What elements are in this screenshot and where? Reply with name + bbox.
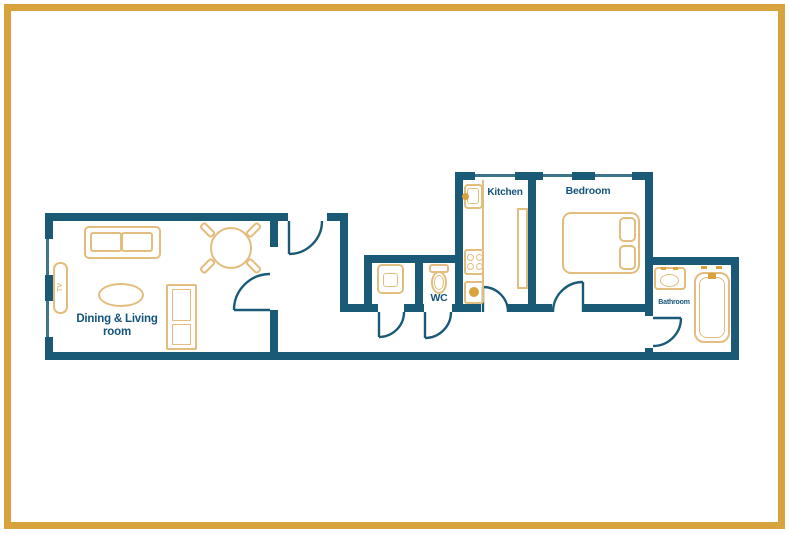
kitchen-door [483, 287, 508, 312]
stove-burners [467, 254, 484, 271]
living-room-label-line1: Dining & Living [58, 313, 176, 326]
bathroom-label: Bathroom [650, 299, 698, 307]
bedroom-door [553, 282, 583, 312]
bathtub-tap-right [716, 266, 722, 269]
sofa-cushion-right [121, 232, 153, 252]
tv-icon: TV [53, 262, 68, 314]
floorplan-canvas: TV Dining & Living room WC Kitchen Be [0, 0, 789, 533]
living-room-label: Dining & Living room [58, 313, 176, 338]
toilet-bowl-inner [434, 275, 444, 290]
living-room-label-line2: room [58, 326, 176, 339]
kitchen-label: Kitchen [480, 187, 530, 198]
burner-icon [467, 254, 474, 261]
living-room-door [234, 274, 270, 310]
bathroom-sink-basin [660, 274, 679, 287]
burner-icon [467, 263, 474, 270]
burner-icon [476, 263, 483, 270]
bathtub-inner [699, 277, 725, 338]
wc-door [425, 312, 451, 338]
stove-icon [464, 249, 484, 275]
kitchen-side-counter [517, 208, 528, 289]
utility-door [379, 312, 404, 337]
oven-door-dot [469, 287, 479, 297]
coffee-table-icon [98, 283, 144, 307]
tv-label: TV [55, 264, 66, 312]
pillow-icon-bottom [619, 245, 636, 270]
bathtub-faucet [708, 273, 716, 279]
kitchen-faucet-dot [462, 193, 469, 200]
pillow-icon-top [619, 217, 636, 242]
bathroom-door [653, 318, 681, 346]
sofa-cushion-left [90, 232, 122, 252]
bathroom-sink-tap-right [673, 267, 678, 270]
wc-label: WC [424, 293, 454, 305]
bedroom-label: Bedroom [556, 186, 620, 198]
burner-icon [476, 254, 483, 261]
entrance-door [289, 221, 322, 254]
bathroom-sink-tap-left [661, 267, 666, 270]
bathtub-tap-left [701, 266, 707, 269]
washing-machine-door [383, 273, 398, 287]
